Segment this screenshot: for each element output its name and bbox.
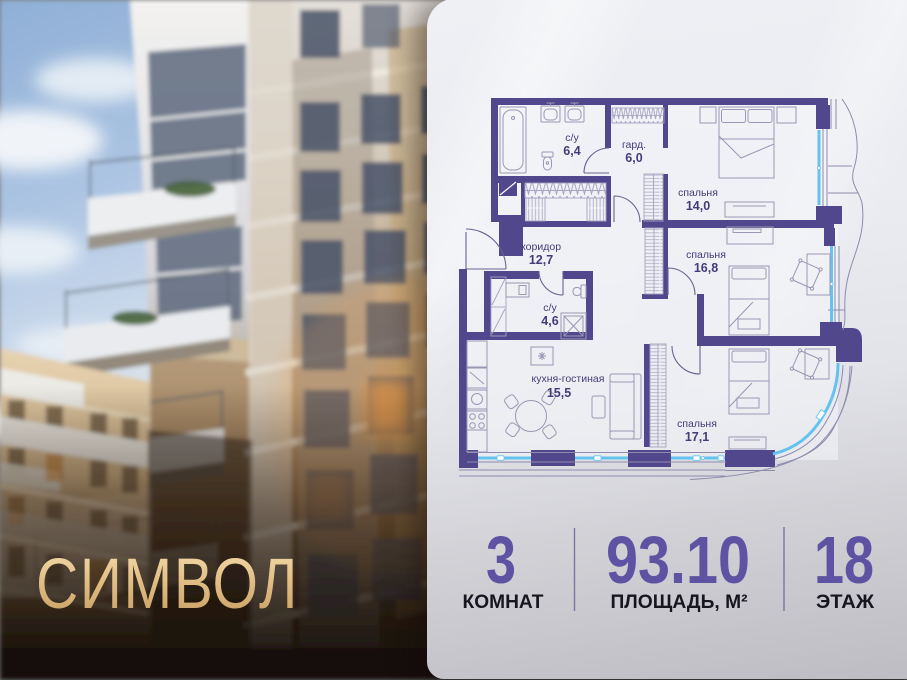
svg-text:3: 3	[486, 523, 516, 598]
svg-text:спальня: спальня	[686, 249, 726, 261]
svg-text:кухня-гостиная: кухня-гостиная	[532, 373, 605, 385]
svg-text:15,5: 15,5	[547, 386, 571, 400]
svg-text:ПЛОЩАДЬ, М²: ПЛОЩАДЬ, М²	[611, 592, 748, 613]
svg-text:6,0: 6,0	[625, 151, 642, 165]
svg-text:КОМНАТ: КОМНАТ	[463, 592, 544, 613]
svg-text:93.10: 93.10	[606, 523, 750, 598]
svg-text:спальня: спальня	[677, 418, 717, 430]
svg-text:18: 18	[814, 523, 874, 598]
svg-text:гард.: гард.	[622, 139, 646, 151]
svg-text:4,6: 4,6	[541, 314, 558, 328]
svg-text:спальня: спальня	[678, 187, 718, 199]
svg-text:коридор: коридор	[521, 241, 561, 253]
svg-text:ЭТАЖ: ЭТАЖ	[816, 592, 875, 613]
svg-text:14,0: 14,0	[686, 199, 710, 213]
svg-text:6,4: 6,4	[563, 144, 580, 158]
svg-text:12,7: 12,7	[529, 253, 553, 267]
svg-text:с/у: с/у	[565, 132, 579, 144]
svg-text:16,8: 16,8	[694, 261, 718, 275]
svg-text:17,1: 17,1	[685, 430, 709, 444]
svg-text:с/у: с/у	[543, 302, 557, 314]
